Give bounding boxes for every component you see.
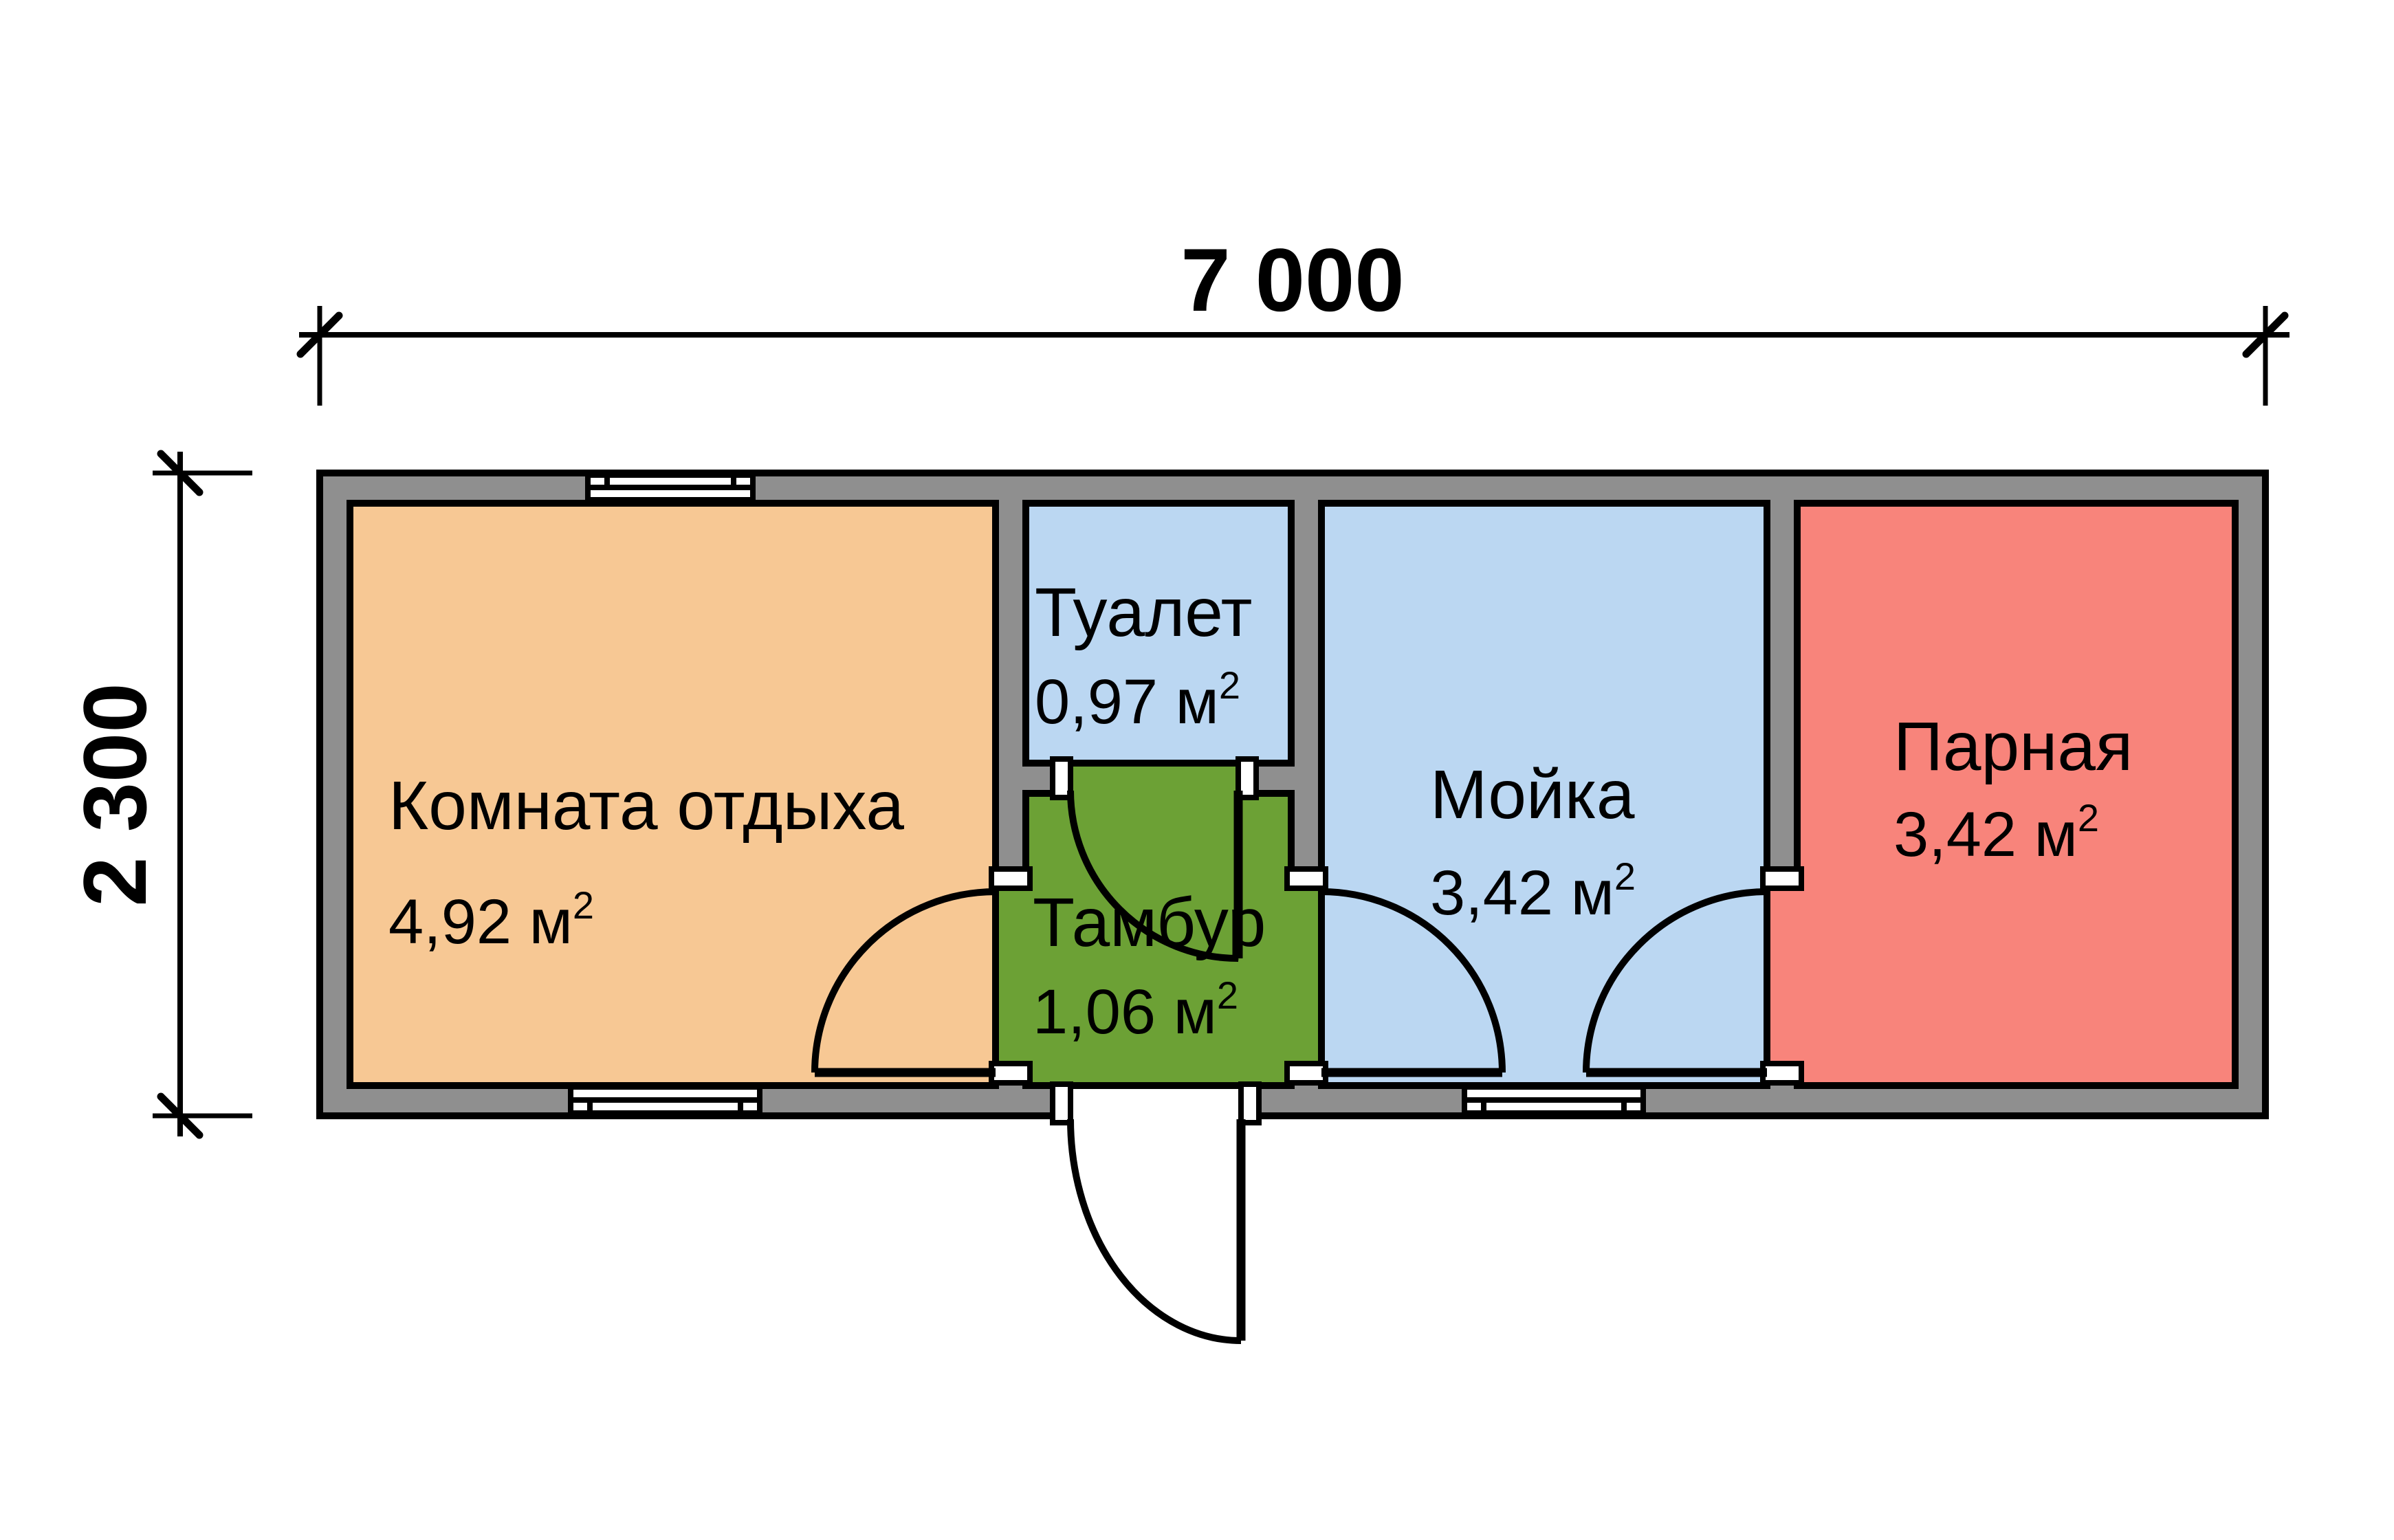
dimension-height-label: 2 300 [65,683,165,906]
room-tambour-name: Тамбур [1033,884,1266,961]
jamb-entrance-door-right [1241,1084,1259,1123]
doorway-pass-toilet [1070,767,1238,797]
room-washroom-area: 3,42 м2 [1430,855,1636,928]
window-bottom-right [1464,1087,1643,1113]
jamb-lounge-door-top [991,869,1030,888]
jamb-washroom-door-bottom [1287,1064,1326,1083]
room-lounge-area: 4,92 м2 [388,883,594,957]
room-tambour-area: 1,06 м2 [1033,973,1238,1047]
doorway-pass-steam [1770,888,1801,1064]
room-lounge-name: Комната отдыха [388,767,904,844]
doorway-pass-entrance [1070,1089,1241,1123]
dimension-width-label: 7 000 [1180,230,1404,330]
room-steam-name: Парная [1893,708,2133,785]
jamb-lounge-door-bottom [991,1064,1030,1083]
window-top [588,475,753,500]
room-toilet-name: Туалет [1035,574,1252,651]
window-bottom-left [571,1087,760,1113]
room-steam-floor [1797,503,2235,1086]
jamb-steam-door-bottom [1763,1064,1801,1083]
doorway-pass-lounge [999,888,1029,1064]
floor-plan: Комната отдыха 4,92 м2 Туалет 0,97 м2 Та… [0,0,2394,1540]
room-washroom-name: Мойка [1430,756,1635,833]
jamb-steam-door-top [1763,869,1801,888]
doorway-pass-washroom [1287,888,1318,1064]
room-steam-area: 3,42 м2 [1893,796,2099,870]
jamb-washroom-door-top [1287,869,1326,888]
jamb-entrance-door-left [1053,1084,1070,1123]
room-toilet-area: 0,97 м2 [1035,663,1240,737]
